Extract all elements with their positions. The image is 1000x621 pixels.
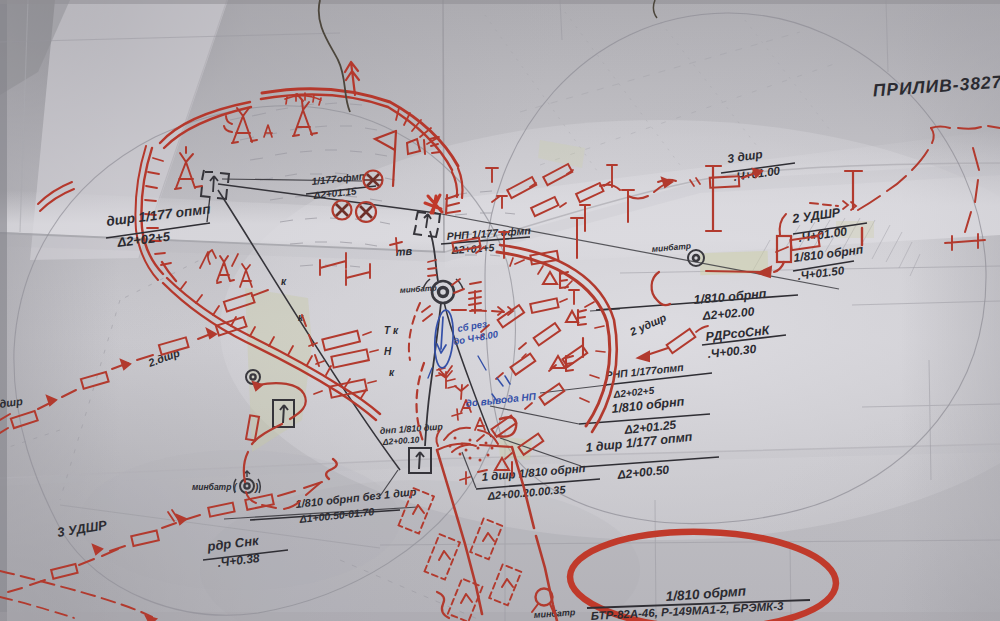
svg-text:Н: Н [384, 346, 392, 357]
svg-text:минбатр (: минбатр ( [192, 482, 238, 492]
svg-text:Т к: Т к [384, 325, 399, 336]
